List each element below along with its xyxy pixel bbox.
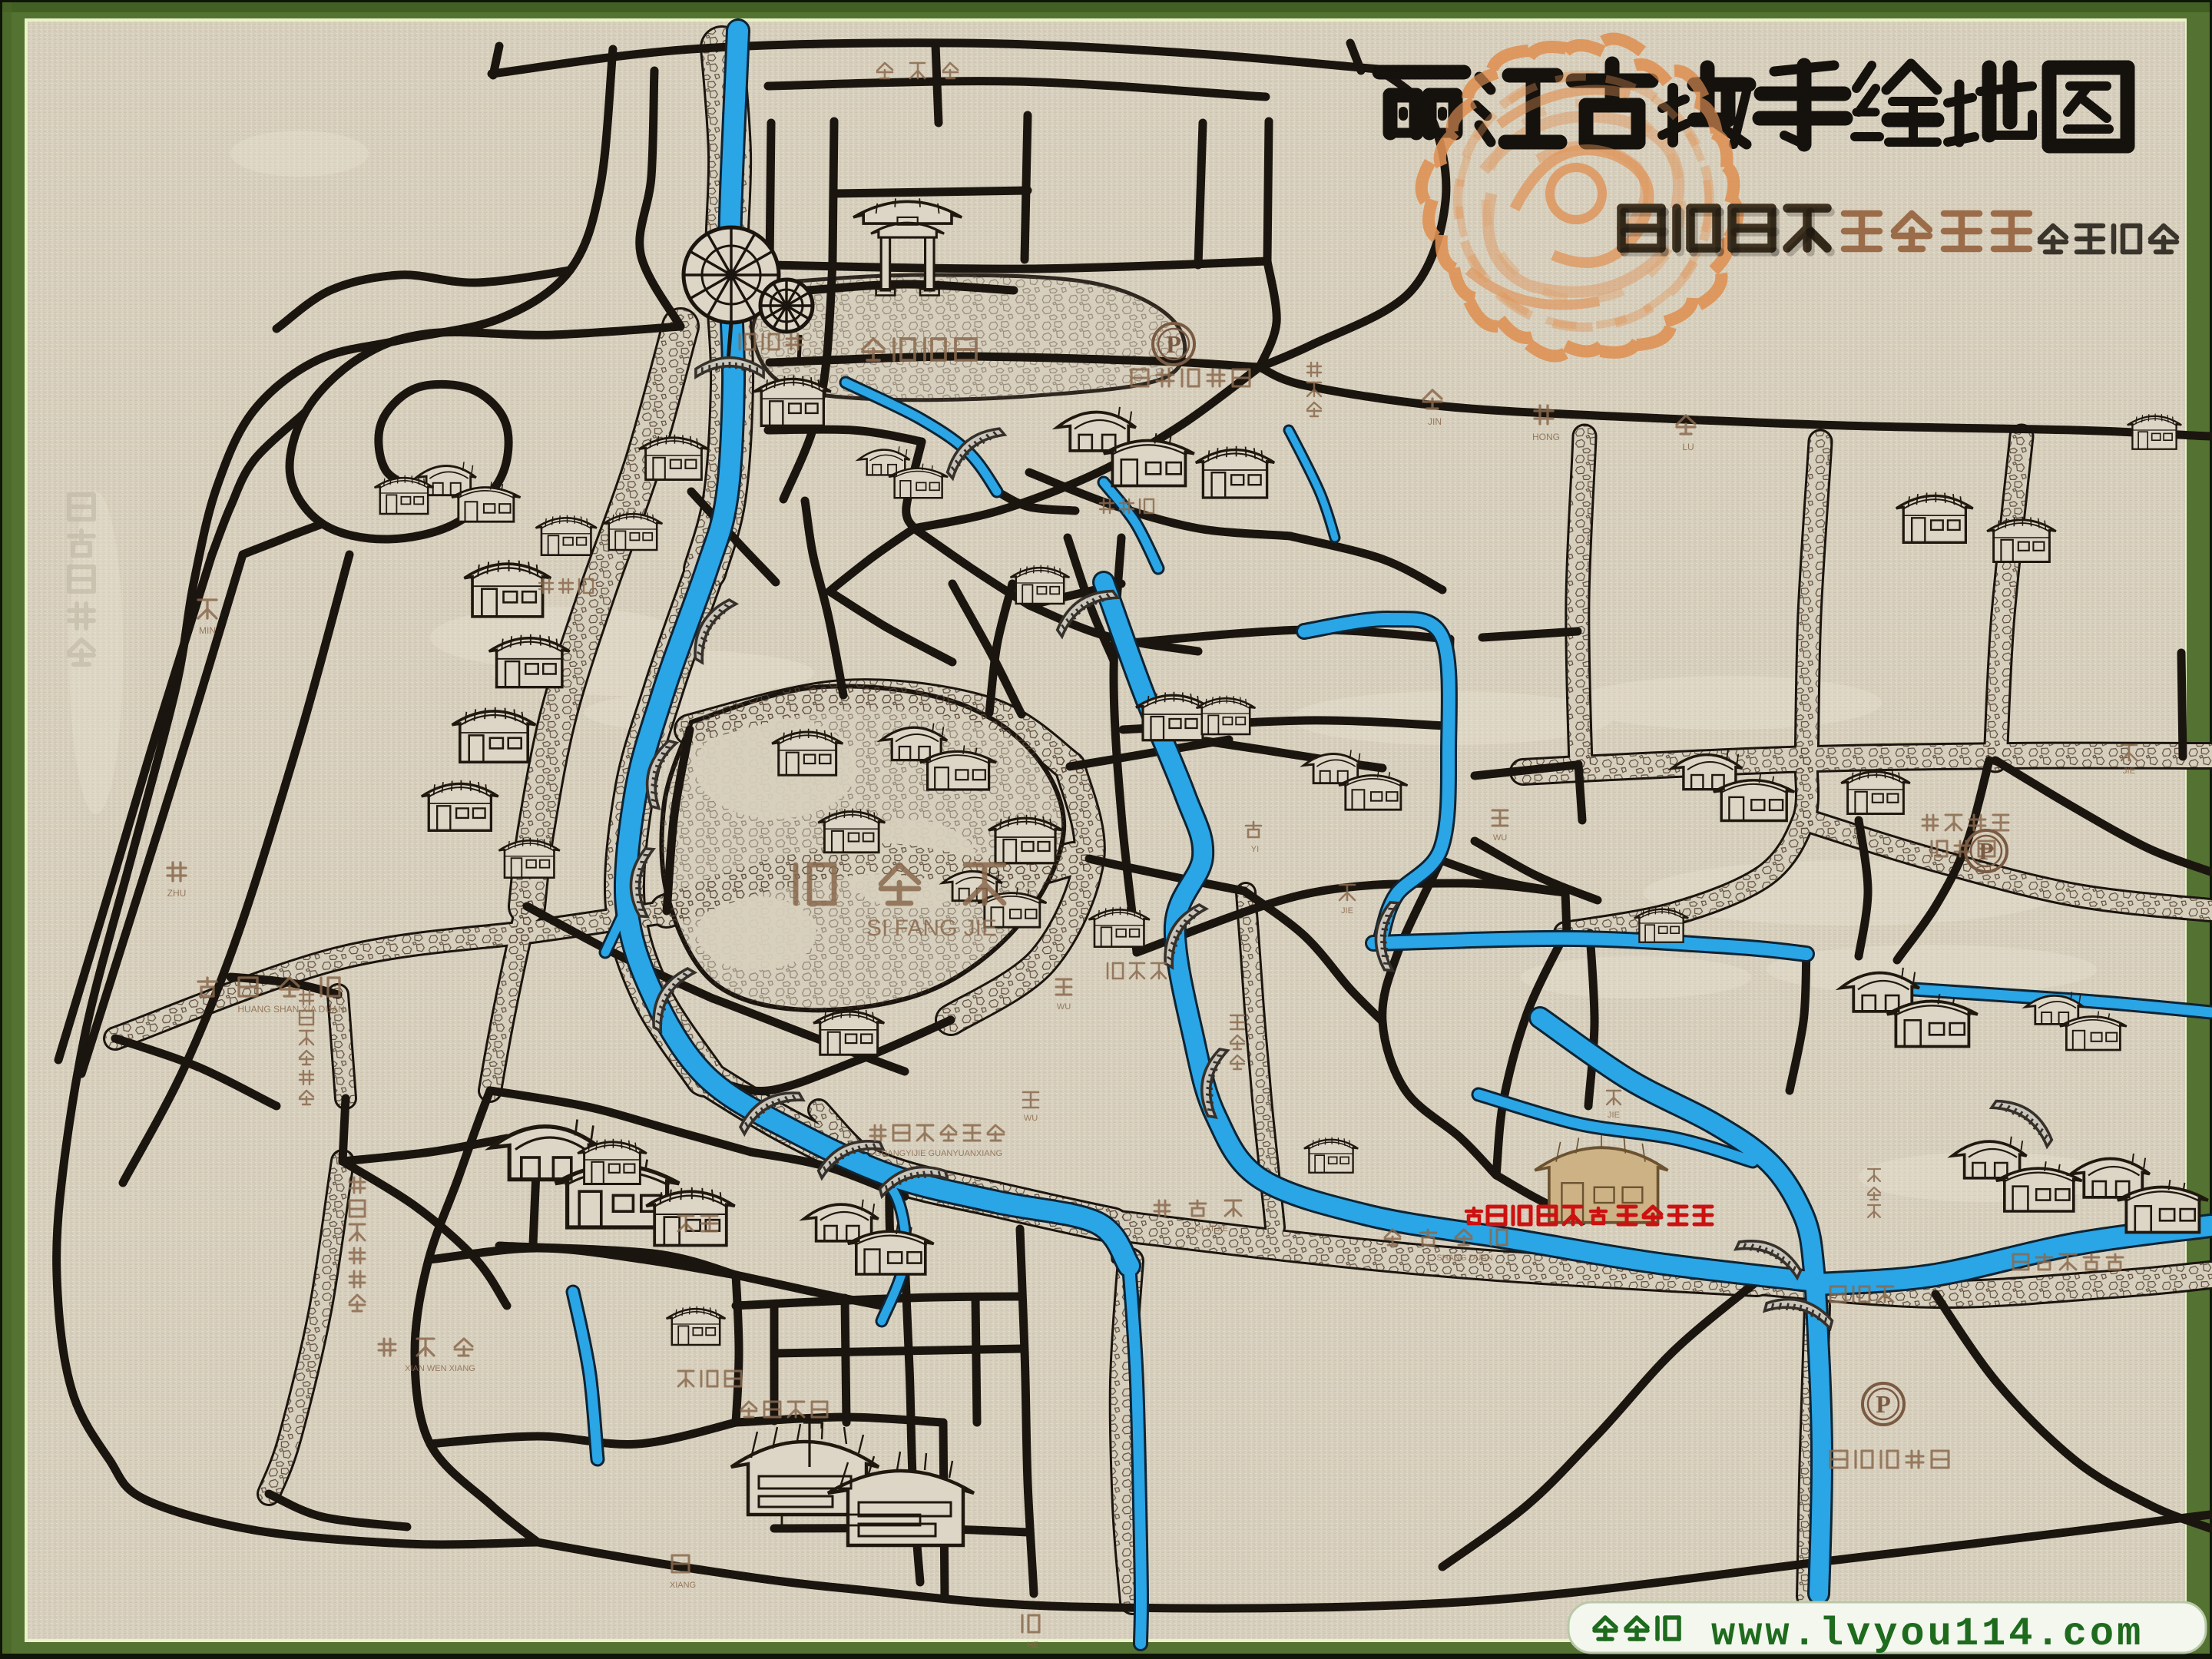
svg-text:WU: WU bbox=[1057, 1002, 1071, 1012]
svg-text:XIANG: XIANG bbox=[670, 1581, 696, 1590]
svg-text:JIN: JIN bbox=[1428, 416, 1442, 427]
svg-text:LU: LU bbox=[1682, 442, 1694, 452]
svg-text:JIE: JIE bbox=[1341, 906, 1353, 916]
svg-text:HUANG SHAN XIA DUAN: HUANG SHAN XIA DUAN bbox=[237, 1004, 344, 1015]
svg-text:www.lvyou114.com: www.lvyou114.com bbox=[1711, 1611, 2144, 1657]
svg-text:GUANGYIJIE GUANYUANXIANG: GUANGYIJIE GUANYUANXIANG bbox=[875, 1149, 1002, 1158]
svg-text:MIN: MIN bbox=[199, 625, 216, 636]
svg-text:JIE: JIE bbox=[1608, 1111, 1620, 1120]
svg-text:ZHU: ZHU bbox=[167, 888, 187, 899]
svg-text:XIAN WEN XIANG: XIAN WEN XIANG bbox=[405, 1364, 475, 1373]
svg-text:SHANG DUAN: SHANG DUAN bbox=[1436, 1253, 1492, 1263]
svg-text:WU: WU bbox=[1024, 1114, 1038, 1123]
svg-text:WU: WU bbox=[1493, 833, 1507, 843]
svg-text:YI: YI bbox=[1251, 845, 1259, 854]
svg-text:HE: HE bbox=[1027, 1641, 1038, 1650]
svg-text:QI YI JIE: QI YI JIE bbox=[1194, 1224, 1228, 1233]
svg-text:HONG: HONG bbox=[1532, 432, 1560, 442]
svg-text:SI FANG JIE: SI FANG JIE bbox=[866, 916, 997, 941]
svg-text:JIE: JIE bbox=[2123, 767, 2135, 776]
